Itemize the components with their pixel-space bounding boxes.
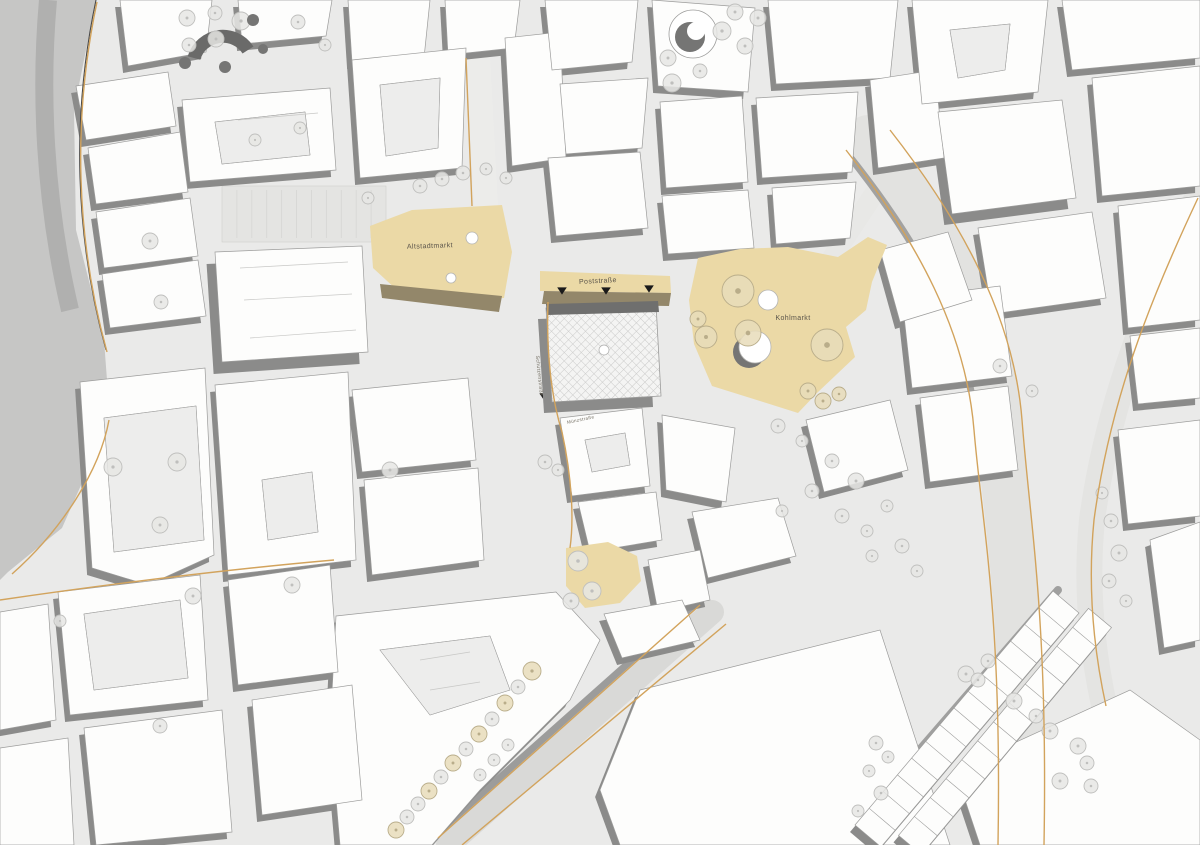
tree-trunk-dot [570,600,573,603]
tree-trunk-dot [175,460,178,463]
tree-trunk-dot [746,331,751,336]
tree-trunk-dot [428,790,431,793]
tree-trunk-dot [465,748,468,751]
tree-dark [258,44,268,54]
tree-trunk-dot [297,21,300,24]
tree-trunk-dot [670,81,673,84]
tree-trunk-dot [704,335,708,339]
tree-trunk-dot [822,400,825,403]
tree-trunk-dot [1108,580,1111,583]
courtyard [950,24,1010,78]
tree-trunk-dot [299,127,301,129]
tree-trunk-dot [855,480,858,483]
tree-trunk-dot [504,702,507,705]
tree-trunk-dot [557,469,559,471]
tree-trunk-dot [149,240,152,243]
tree-trunk-dot [734,11,737,14]
label-kohlmarkt: Kohlmarkt [775,315,810,322]
building-footprint [352,378,476,472]
building-footprint [545,0,638,70]
tree-trunk-dot [999,365,1002,368]
map-canvas: AltstadtmarktPoststraßeKohlmarktSchützen… [0,0,1200,845]
tree-trunk-dot [441,178,444,181]
tree-trunk-dot [757,17,760,20]
well-circle [466,232,478,244]
courtyard [262,472,318,540]
tree-trunk-dot [485,168,487,170]
building-footprint [0,604,56,730]
courtyard [585,433,630,472]
tree-trunk-dot [576,559,580,563]
tree-trunk-dot [977,679,980,682]
tree-trunk-dot [406,816,409,819]
tree-trunk-dot [462,172,465,175]
tree-trunk-dot [735,288,741,294]
building-footprint [660,96,748,188]
tree-trunk-dot [777,425,780,428]
building-footprint [662,190,754,254]
tree-dark [247,14,259,26]
tree-trunk-dot [1077,745,1080,748]
parking-lot [222,186,386,242]
tree-trunk-dot [530,669,533,672]
tree-trunk-dot [507,744,509,746]
city-figure-ground-plan: AltstadtmarktPoststraßeKohlmarktSchützen… [0,0,1200,845]
building-footprint [1118,420,1200,524]
tree-trunk-dot [781,510,783,512]
rotunda-core [687,22,705,40]
tree-trunk-dot [1090,785,1093,788]
tree-trunk-dot [801,440,803,442]
tree-trunk-dot [478,733,481,736]
tree-trunk-dot [590,589,593,592]
building-footprint [1130,328,1200,404]
building-footprint [756,92,858,178]
tree-trunk-dot [987,660,990,663]
street [478,56,486,206]
tree-trunk-dot [1110,520,1113,523]
tree-trunk-dot [188,44,191,47]
tree-trunk-dot [868,770,870,772]
tree-trunk-dot [214,12,217,15]
building-footprint [215,372,356,575]
tree-trunk-dot [1101,492,1103,494]
tree-trunk-dot [491,718,494,721]
tree-dark [179,57,191,69]
tree-trunk-dot [440,776,443,779]
tree-trunk-dot [720,29,723,32]
tree-trunk-dot [699,70,702,73]
tree-trunk-dot [886,505,888,507]
tree-trunk-dot [667,57,670,60]
tree-dark [219,61,231,73]
tree-trunk-dot [417,803,420,806]
tree-trunk-dot [1013,700,1016,703]
tree-trunk-dot [160,301,163,304]
building-footprint [1118,196,1200,328]
tree-trunk-dot [291,584,294,587]
building-footprint [920,386,1018,482]
tree-trunk-dot [807,390,810,393]
well-circle [446,273,456,283]
courtyard [380,78,440,156]
building-footprint [768,0,898,84]
tree-trunk-dot [875,742,878,745]
building-footprint [938,100,1076,214]
building-footprint [1062,0,1200,70]
tree-trunk-dot [452,762,455,765]
tree-trunk-dot [1031,390,1033,392]
tree-trunk-dot [965,673,968,676]
tree-trunk-dot [186,17,189,20]
tree-trunk-dot [544,461,547,464]
tree-trunk-dot [811,490,814,493]
atrium-circle [599,345,609,355]
tree-trunk-dot [697,318,700,321]
tree-trunk-dot [841,515,844,518]
building-footprint [560,78,648,154]
tree-trunk-dot [916,570,918,572]
tree-trunk-dot [744,45,747,48]
tree-trunk-dot [824,342,830,348]
tree-trunk-dot [419,185,422,188]
tree-trunk-dot [395,829,398,832]
tree-trunk-dot [159,725,162,728]
tree-trunk-dot [324,44,326,46]
courtyard [84,600,188,690]
tree-trunk-dot [901,545,904,548]
tree-trunk-dot [479,774,481,776]
building-footprint [548,152,648,236]
tree-trunk-dot [239,19,242,22]
tree-trunk-dot [866,530,868,532]
tree-trunk-dot [857,810,859,812]
building-footprint [772,182,856,244]
tree-trunk-dot [517,686,520,689]
tree-trunk-dot [838,393,841,396]
building-footprint [252,685,362,815]
tree-trunk-dot [111,465,114,468]
tree-trunk-dot [192,595,195,598]
well-circle [758,290,778,310]
tree-trunk-dot [159,524,162,527]
building-footprint [662,415,735,502]
tree-trunk-dot [831,460,834,463]
tree-trunk-dot [1125,600,1127,602]
building-footprint [348,0,430,62]
tree-trunk-dot [1086,762,1089,765]
building-footprint [364,468,484,575]
tree-trunk-dot [59,620,61,622]
tree-trunk-dot [871,555,873,557]
building-footprint [228,565,338,685]
tree-trunk-dot [1118,552,1121,555]
tree-trunk-dot [1059,780,1062,783]
tree-trunk-dot [215,38,218,41]
building-footprint [215,246,368,362]
tree-trunk-dot [505,177,507,179]
tree-trunk-dot [1049,730,1052,733]
building-footprint [0,738,74,845]
tree-trunk-dot [1035,715,1038,718]
tree-trunk-dot [887,756,889,758]
tree-trunk-dot [880,792,883,795]
tree-trunk-dot [254,139,256,141]
tree-trunk-dot [493,759,495,761]
tree-trunk-dot [389,469,392,472]
building-footprint [1092,66,1200,196]
tree-trunk-dot [367,197,369,199]
